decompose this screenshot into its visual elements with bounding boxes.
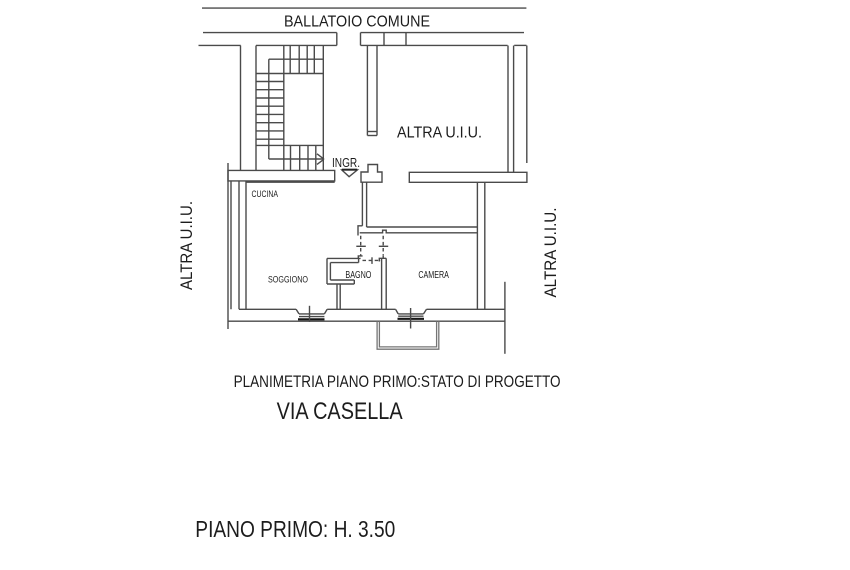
svg-text:PLANIMETRIA PIANO PRIMO:STATO: PLANIMETRIA PIANO PRIMO:STATO DI PROGETT… <box>234 372 561 391</box>
svg-text:INGR.: INGR. <box>332 155 360 170</box>
svg-text:CUCINA: CUCINA <box>252 189 279 199</box>
svg-text:BAGNO: BAGNO <box>345 269 371 281</box>
svg-text:ALTRA U.I.U.: ALTRA U.I.U. <box>542 208 560 298</box>
svg-text:SOGGIONO: SOGGIONO <box>268 274 308 284</box>
svg-text:ALTRA U.I.U.: ALTRA U.I.U. <box>178 201 196 290</box>
svg-text:ALTRA U.I.U.: ALTRA U.I.U. <box>397 124 482 141</box>
svg-text:VIA CASELLA: VIA CASELLA <box>277 398 403 425</box>
svg-text:PIANO PRIMO: H. 3.50: PIANO PRIMO: H. 3.50 <box>195 516 395 542</box>
svg-text:BALLATOIO COMUNE: BALLATOIO COMUNE <box>284 14 430 31</box>
svg-text:CAMERA: CAMERA <box>418 269 449 281</box>
